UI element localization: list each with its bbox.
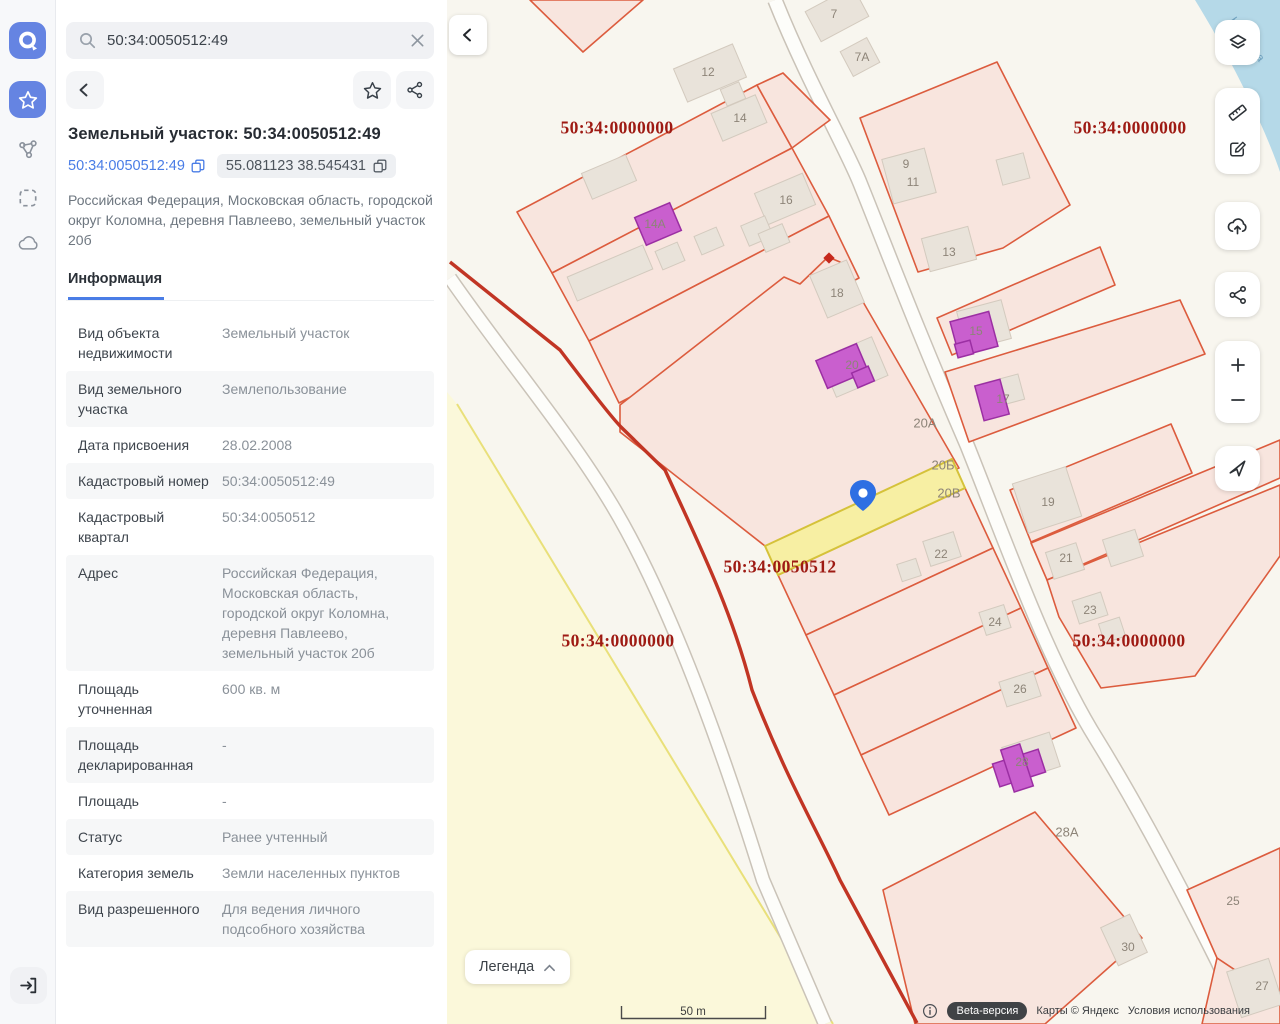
legend-label: Легенда xyxy=(479,959,534,975)
info-row-value: Землепользование xyxy=(222,379,422,419)
info-row-value: Земельный участок xyxy=(222,323,422,363)
locate-button[interactable] xyxy=(1215,446,1260,491)
coordinates-text: 55.081123 38.545431 xyxy=(226,158,366,174)
layers-icon xyxy=(1226,31,1250,55)
nodes-icon xyxy=(16,138,39,161)
tab-information[interactable]: Информация xyxy=(68,271,164,300)
exit-icon xyxy=(18,975,39,996)
info-row: Кадастровый квартал50:34:0050512 xyxy=(66,499,434,555)
locate-icon xyxy=(1226,457,1249,480)
info-row-label: Вид объекта недвижимости xyxy=(78,323,210,363)
chips-row: 50:34:0050512:49 55.081123 38.545431 xyxy=(68,154,434,178)
info-row-value: Земли населенных пунктов xyxy=(222,863,422,883)
info-row-value: - xyxy=(222,735,422,775)
info-row: АдресРоссийская Федерация, Московская об… xyxy=(66,555,434,671)
info-row: Дата присвоения28.02.2008 xyxy=(66,427,434,463)
info-row-label: Категория земель xyxy=(78,863,210,883)
info-row: Вид объекта недвижимостиЗемельный участо… xyxy=(66,315,434,371)
plus-icon xyxy=(1228,355,1248,375)
beta-badge: Beta-версия xyxy=(947,1002,1027,1020)
info-row-value: Российская Федерация, Московская область… xyxy=(222,563,422,663)
info-row-label: Дата присвоения xyxy=(78,435,210,455)
collapse-panel-button[interactable] xyxy=(449,15,487,55)
info-table: Вид объекта недвижимостиЗемельный участо… xyxy=(66,315,434,947)
share-button[interactable] xyxy=(396,71,434,109)
info-row: Площадь уточненная600 кв. м xyxy=(66,671,434,727)
map-share-button[interactable] xyxy=(1215,272,1260,317)
star-icon xyxy=(17,89,39,111)
info-row: СтатусРанее учтенный xyxy=(66,819,434,855)
info-row-label: Адрес xyxy=(78,563,210,663)
info-row-value: Ранее учтенный xyxy=(222,827,422,847)
search-input[interactable] xyxy=(105,31,403,50)
layers-button[interactable] xyxy=(1215,20,1260,65)
info-row-label: Вид земельного участка xyxy=(78,379,210,419)
info-row: Площадь декларированная- xyxy=(66,727,434,783)
zoom-out-button[interactable] xyxy=(1219,384,1256,415)
back-button[interactable] xyxy=(66,71,104,109)
ruler-icon xyxy=(1226,101,1249,124)
info-row: Площадь- xyxy=(66,783,434,819)
info-row-value: 28.02.2008 xyxy=(222,435,422,455)
logo-icon xyxy=(16,29,40,53)
info-row-label: Площадь уточненная xyxy=(78,679,210,719)
map-layers xyxy=(447,0,1280,1024)
info-row: Категория земельЗемли населенных пунктов xyxy=(66,855,434,891)
object-toolbar xyxy=(66,71,434,109)
info-row-label: Статус xyxy=(78,827,210,847)
exit-button[interactable] xyxy=(10,967,47,1004)
close-icon xyxy=(411,34,424,47)
scale-bar: 50 m xyxy=(619,1002,769,1022)
cloud-upload-icon xyxy=(1225,214,1250,239)
details-panel: Земельный участок: 50:34:0050512:49 50:3… xyxy=(56,0,447,1024)
page-title: Земельный участок: 50:34:0050512:49 xyxy=(68,125,434,144)
map-controls xyxy=(1215,20,1260,491)
ruler-button[interactable] xyxy=(1219,96,1256,129)
info-row-value: 50:34:0050512 xyxy=(222,507,422,547)
cadastral-number-text: 50:34:0050512:49 xyxy=(68,158,185,174)
cadastral-number-link[interactable]: 50:34:0050512:49 xyxy=(68,158,205,174)
info-icon[interactable] xyxy=(922,1003,938,1019)
share-icon xyxy=(405,80,425,100)
select-area-icon xyxy=(17,187,39,209)
app-root: Земельный участок: 50:34:0050512:49 50:3… xyxy=(0,0,1280,1024)
draw-icon xyxy=(1226,138,1249,161)
info-row-value: - xyxy=(222,791,422,811)
info-row: Кадастровый номер50:34:0050512:49 xyxy=(66,463,434,499)
coordinates-chip: 55.081123 38.545431 xyxy=(217,154,396,178)
sidebar-item-select-area[interactable] xyxy=(9,179,46,216)
tab-bar: Информация xyxy=(66,270,434,301)
copy-icon[interactable] xyxy=(191,159,205,173)
sidebar-item-cloud[interactable] xyxy=(9,225,46,262)
terms-link[interactable]: Условия использования xyxy=(1128,1005,1250,1017)
legend-button[interactable]: Легенда xyxy=(465,950,570,984)
info-row: Вид разрешенногоДля ведения личного подс… xyxy=(66,891,434,947)
star-icon xyxy=(362,80,383,101)
upload-button[interactable] xyxy=(1215,202,1260,250)
info-row-label: Площадь xyxy=(78,791,210,811)
share-icon xyxy=(1227,284,1249,306)
measure-tools-group xyxy=(1215,88,1260,174)
zoom-in-button[interactable] xyxy=(1219,349,1256,380)
search-bar[interactable] xyxy=(66,22,434,59)
map-attribution: Beta-версия Карты © Яндекс Условия испол… xyxy=(922,1002,1250,1020)
chevron-left-icon xyxy=(75,80,95,100)
search-icon xyxy=(78,31,97,50)
sidebar-item-geometry[interactable] xyxy=(9,131,46,168)
zoom-group xyxy=(1215,341,1260,423)
chevron-left-icon xyxy=(458,25,478,45)
app-logo[interactable] xyxy=(9,22,46,59)
cloud-icon xyxy=(16,232,40,256)
copy-icon[interactable] xyxy=(373,159,387,173)
info-row-label: Кадастровый квартал xyxy=(78,507,210,547)
clear-search-button[interactable] xyxy=(411,34,424,47)
object-address: Российская Федерация, Московская область… xyxy=(68,190,434,250)
minus-icon xyxy=(1228,390,1248,410)
draw-button[interactable] xyxy=(1219,133,1256,166)
favorite-button[interactable] xyxy=(353,71,391,109)
chevron-up-icon xyxy=(543,963,556,972)
info-row-label: Вид разрешенного xyxy=(78,899,210,939)
sidebar-item-favorites[interactable] xyxy=(9,81,46,118)
map-canvas[interactable]: 50:34:000000050:34:000000050:34:00505125… xyxy=(447,0,1280,1024)
info-row: Вид земельного участкаЗемлепользование xyxy=(66,371,434,427)
info-row-value: Для ведения личного подсобного хозяйства xyxy=(222,899,422,939)
info-row-value: 600 кв. м xyxy=(222,679,422,719)
info-row-label: Кадастровый номер xyxy=(78,471,210,491)
left-rail xyxy=(0,0,56,1024)
info-row-value: 50:34:0050512:49 xyxy=(222,471,422,491)
maps-copyright: Карты © Яндекс xyxy=(1036,1005,1119,1017)
info-row-label: Площадь декларированная xyxy=(78,735,210,775)
scale-label: 50 m xyxy=(680,1006,706,1018)
